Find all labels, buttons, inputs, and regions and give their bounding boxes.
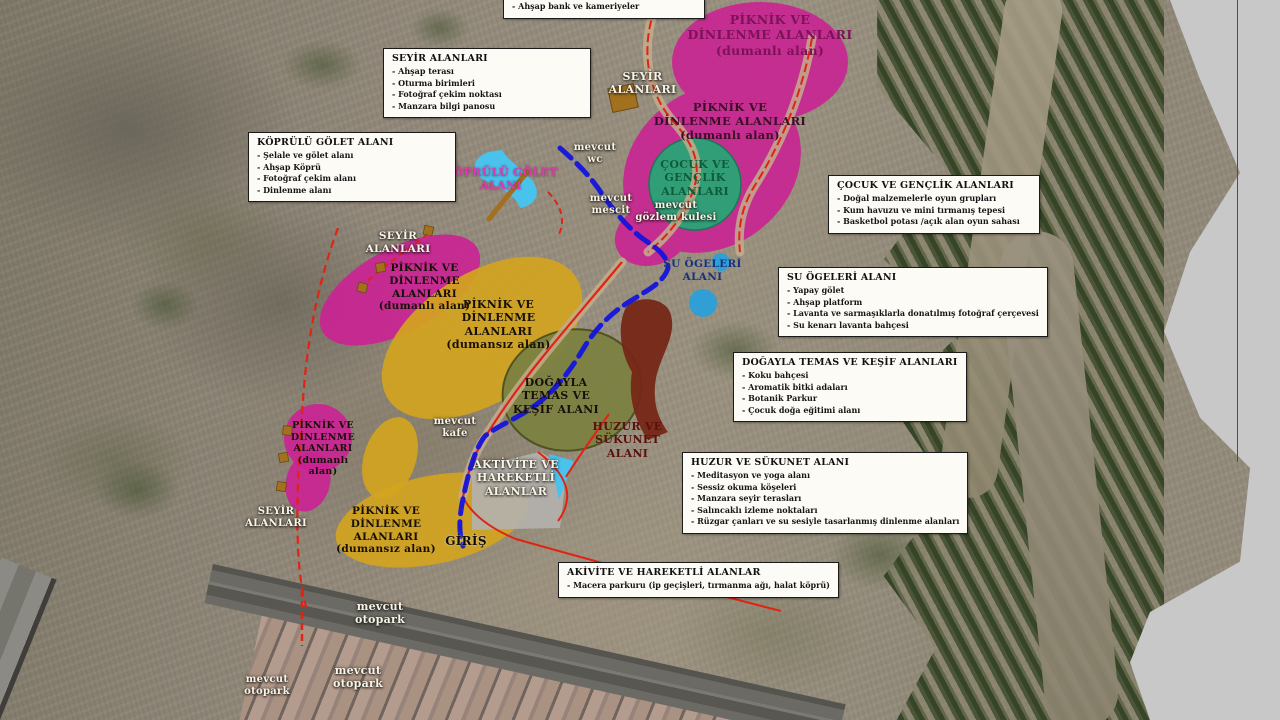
zone-label-cocuk-genclik: ÇOCUK VE GENÇLİK ALANLARI [643, 158, 747, 198]
legend-item: - Ahşap platform [787, 297, 1039, 309]
legend-item: - Çocuk doğa eğitimi alanı [742, 405, 958, 417]
legend-title: HUZUR VE SÜKUNET ALANI [691, 457, 959, 468]
legend-item: - Manzara bilgi panosu [392, 101, 582, 113]
zone-label-seyir-top: SEYİR ALANLARI [600, 70, 685, 97]
zone-label-piknik-dumanli-small: PİKNİK VE DİNLENME ALANLARI (dumanlı ala… [282, 420, 364, 478]
zone-label-aktivite: AKTİVİTE VE HAREKETLİ ALANLAR [462, 458, 570, 498]
legend-item: - Ahşap bank ve kameriyeler [512, 1, 696, 13]
zone-label-su-ogeleri: SU ÖGELERİ ALANI [655, 258, 750, 284]
zone-label-piknik-dumansiz-bottom: PİKNİK VE DİNLENME ALANLARI (dumansız al… [330, 505, 442, 556]
legend-item: - Doğal malzemelerle oyun grupları [837, 193, 1031, 205]
legend-item: - Macera parkuru (ip geçişleri, tırmanma… [567, 580, 830, 592]
legend-title: SEYİR ALANLARI [392, 53, 582, 64]
existing-wc-label: mevcut wc [565, 142, 625, 166]
legend-item: - Şelale ve gölet alanı [257, 150, 447, 162]
legend-item: - Kum havuzu ve mini tırmanış tepesi [837, 205, 1031, 217]
zone-label-piknik-dumansiz: PİKNİK VE DİNLENME ALANLARI (dumansız al… [436, 298, 561, 352]
su-ogeleri-pond [689, 289, 717, 317]
legend-title: KÖPRÜLÜ GÖLET ALANI [257, 137, 447, 148]
legend-box-aktivite-hareketli: AKİVİTE VE HAREKETLİ ALANLAR - Macera pa… [558, 562, 839, 598]
legend-item: - Manzara seyir terasları [691, 493, 959, 505]
legend-item: - Ahşap Köprü [257, 162, 447, 174]
legend-item: - Rüzgar çanları ve su sesiyle tasarlanm… [691, 516, 959, 528]
entrance-label: GİRİŞ [440, 534, 492, 549]
legend-title: ÇOCUK VE GENÇLİK ALANLARI [837, 180, 1031, 191]
legend-item: - Botanik Parkur [742, 393, 958, 405]
legend-title: AKİVİTE VE HAREKETLİ ALANLAR [567, 567, 830, 578]
legend-box-huzur-sukunet: HUZUR VE SÜKUNET ALANI - Meditasyon ve y… [682, 452, 968, 534]
zone-label-seyir-bottom: SEYİR ALANLARI [240, 506, 312, 530]
zone-label-piknik-dinlenme-center: PİKNİK VE DİNLENME ALANLARI (dumanlı ala… [650, 100, 810, 142]
zone-label-seyir-left: SEYİR ALANLARI [358, 230, 438, 256]
legend-box-seyir-alanlari: SEYİR ALANLARI - Ahşap terası - Oturma b… [383, 48, 591, 118]
legend-box-koprulu-golet: KÖPRÜLÜ GÖLET ALANI - Şelale ve gölet al… [248, 132, 456, 202]
legend-item: - Meditasyon ve yoga alanı [691, 470, 959, 482]
zone-label-dogayla-temas: DOĞAYLA TEMAS VE KEŞİF ALANI [500, 376, 612, 416]
existing-parking-label: mevcut otopark [312, 664, 404, 691]
legend-item: - Fotoğraf çekim noktası [392, 89, 582, 101]
zone-label-koprulu-golet: KÖPRÜLÜ GÖLET ALANI [442, 166, 560, 193]
legend-item: - Basketbol potası /açık alan oyun sahas… [837, 216, 1031, 228]
existing-parking-label: mevcut otopark [338, 600, 422, 627]
site-plan-map: PİKNİK VE DİNLENME ALANLARI (dumanlı ala… [0, 0, 1280, 720]
legend-title: DOĞAYLA TEMAS VE KEŞİF ALANLARI [742, 357, 958, 368]
legend-box-dogayla-temas: DOĞAYLA TEMAS VE KEŞİF ALANLARI - Koku b… [733, 352, 967, 422]
zone-label-huzur-sukunet: HUZUR VE SÜKUNET ALANI [580, 420, 675, 460]
zone-label-piknik-dinlenme-top: PİKNİK VE DİNLENME ALANLARI (dumanlı ala… [685, 12, 855, 58]
existing-parking-label: mevcut otopark [236, 674, 298, 698]
legend-box-su-ogeleri: SU ÖGELERİ ALANI - Yapay gölet - Ahşap p… [778, 267, 1048, 337]
legend-item: - Koku bahçesi [742, 370, 958, 382]
legend-item: - Dinlenme alanı [257, 185, 447, 197]
existing-cafe-label: mevcut kafe [426, 416, 484, 440]
existing-watchtower-label: mevcut gözlem kulesi [618, 200, 734, 224]
legend-item: - Ahşap terası [392, 66, 582, 78]
legend-item: - Su kenarı lavanta bahçesi [787, 320, 1039, 332]
legend-box-cocuk-genclik: ÇOCUK VE GENÇLİK ALANLARI - Doğal malzem… [828, 175, 1040, 234]
legend-box-ahsap-bank: - Ahşap bank ve kameriyeler [503, 0, 705, 19]
legend-item: - Salıncaklı izleme noktaları [691, 505, 959, 517]
legend-title: SU ÖGELERİ ALANI [787, 272, 1039, 283]
legend-item: - Fotoğraf çekim alanı [257, 173, 447, 185]
legend-item: - Aromatik bitki adaları [742, 382, 958, 394]
legend-item: - Sessiz okuma köşeleri [691, 482, 959, 494]
legend-item: - Yapay gölet [787, 285, 1039, 297]
legend-item: - Oturma birimleri [392, 78, 582, 90]
legend-item: - Lavanta ve sarmaşıklarla donatılmış fo… [787, 308, 1039, 320]
plan-overlay [0, 0, 1280, 720]
